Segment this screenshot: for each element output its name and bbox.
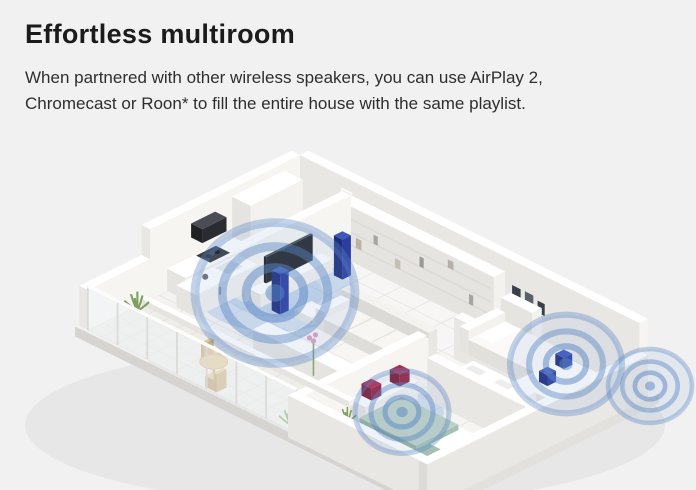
multiroom-section: Effortless multiroom When partnered with… — [0, 0, 696, 490]
page-title: Effortless multiroom — [25, 18, 672, 50]
body-text: When partnered with other wireless speak… — [25, 65, 665, 117]
copy-block: Effortless multiroom When partnered with… — [25, 18, 672, 117]
